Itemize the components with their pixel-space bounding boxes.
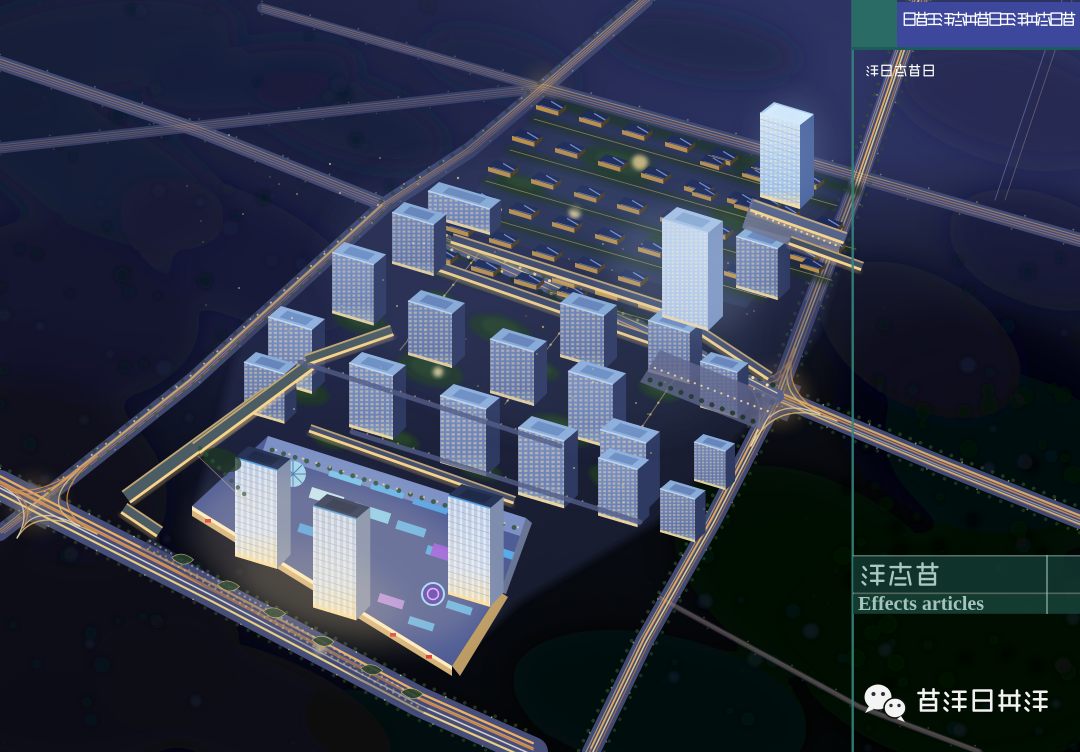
svg-text:Effects articles: Effects articles — [858, 593, 984, 615]
